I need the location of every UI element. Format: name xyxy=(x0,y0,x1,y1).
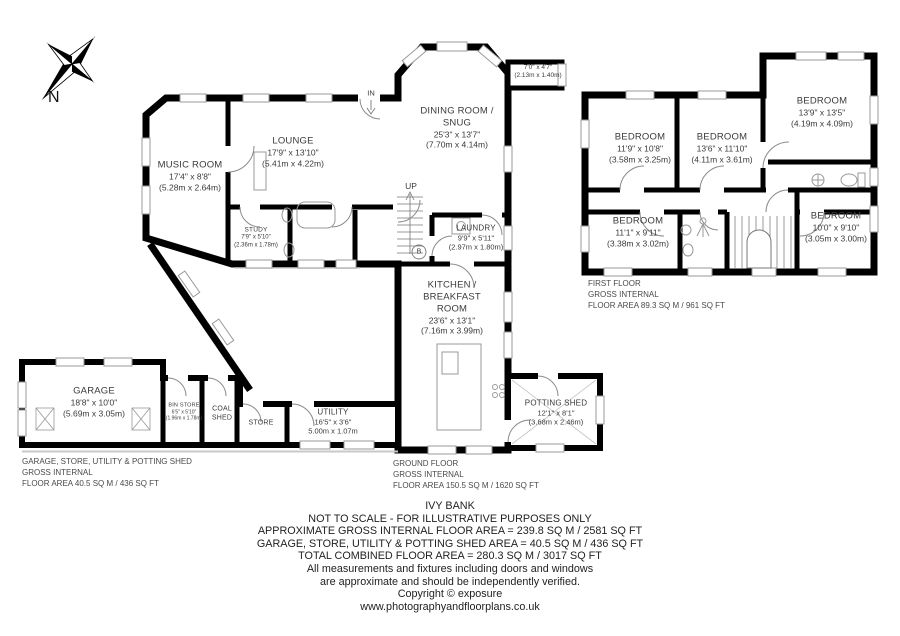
room-dim-imperial: 11'9" x 10'8" xyxy=(609,143,671,154)
room-dim-imperial: 16'5" x 3'6" xyxy=(308,418,358,427)
room-dim-metric: (2.36m x 1.78m) xyxy=(234,242,278,250)
room-dim-imperial: 17'4" x 8'8" xyxy=(158,171,223,182)
footer-line: GARAGE, STORE, UTILITY & POTTING SHED AR… xyxy=(0,538,900,551)
note-line: GARAGE, STORE, UTILITY & POTTING SHED xyxy=(22,456,192,467)
room-dim-imperial: 11'1" x 9'11" xyxy=(607,227,669,238)
note-line: FIRST FLOOR xyxy=(588,278,725,289)
room-name: BIN STORE xyxy=(166,402,202,409)
room-dim-metric: (7.70m x 4.14m) xyxy=(411,140,503,151)
recess-dims-label: 7'0" x 4'7" (2.13m x 1.40m) xyxy=(514,64,561,80)
room-dim-metric: (2.97m x 1.80m) xyxy=(449,243,504,252)
room-name: LOUNGE xyxy=(262,135,324,147)
room-label-bedroom4: BEDROOM 11'1" x 9'11" (3.38m x 3.02m) xyxy=(607,215,669,248)
room-dim-metric: (5.28m x 2.64m) xyxy=(158,182,223,193)
boiler-label: B xyxy=(417,249,422,256)
room-dim-imperial: 13'9" x 13'5" xyxy=(791,107,853,118)
room-dim-imperial: 10'0" x 9'10" xyxy=(805,222,867,233)
footer-line: www.photographyandfloorplans.co.uk xyxy=(0,601,900,614)
footer-line: are approximate and should be independen… xyxy=(0,576,900,589)
room-label-study: STUDY 7'9" x 5'10" (2.36m x 1.78m) xyxy=(234,226,278,249)
room-name: UTILITY xyxy=(308,408,358,418)
footer-line: NOT TO SCALE - FOR ILLUSTRATIVE PURPOSES… xyxy=(0,513,900,526)
recess-dim-metric: (2.13m x 1.40m) xyxy=(514,72,561,80)
room-name: GARAGE xyxy=(63,385,125,397)
room-name: BEDROOM xyxy=(607,215,669,227)
room-dim-imperial: 12'1" x 8'1" xyxy=(525,409,587,418)
room-label-store: STORE xyxy=(249,420,274,429)
room-name: BEDROOM xyxy=(791,95,853,107)
room-dim-imperial: 18'8" x 10'0" xyxy=(63,397,125,408)
note-line: GROSS INTERNAL xyxy=(588,289,725,300)
room-label-coal-shed: COAL SHED xyxy=(206,405,238,423)
room-name: MUSIC ROOM xyxy=(158,159,223,171)
footer-line: All measurements and fixtures including … xyxy=(0,563,900,576)
room-label-dining-snug: DINING ROOM / SNUG 25'3" x 13'7" (7.70m … xyxy=(411,106,503,151)
note-line: FLOOR AREA 89.3 SQ M / 961 SQ FT xyxy=(588,300,725,311)
room-dim-imperial: 9'9" x 5'11" xyxy=(449,234,504,243)
room-label-laundry: LAUNDRY 9'9" x 5'11" (2.97m x 1.80m) xyxy=(449,224,504,253)
room-label-bedroom2: BEDROOM 13'6" x 11'10" (4.11m x 3.61m) xyxy=(691,131,752,164)
room-dim-metric: (1.96m x 1.78m) xyxy=(166,415,202,421)
footer-line: APPROXIMATE GROSS INTERNAL FLOOR AREA = … xyxy=(0,525,900,538)
room-dim-metric: (3.58m x 3.25m) xyxy=(609,154,671,165)
recess-dim-imperial: 7'0" x 4'7" xyxy=(514,64,561,72)
room-name: DINING ROOM / SNUG xyxy=(411,106,503,130)
room-dim-metric: (5.69m x 3.05m) xyxy=(63,408,125,419)
room-label-bedroom3: BEDROOM 13'9" x 13'5" (4.19m x 4.09m) xyxy=(791,95,853,128)
room-dim-imperial: 17'9" x 13'10" xyxy=(262,147,324,158)
room-name: KITCHEN / BREAKFAST ROOM xyxy=(412,280,492,316)
room-dim-metric: 5.00m x 1.07m xyxy=(308,427,358,436)
first-floor-area-note: FIRST FLOOR GROSS INTERNAL FLOOR AREA 89… xyxy=(588,278,725,312)
property-title: IVY BANK xyxy=(0,500,900,513)
note-line: GROSS INTERNAL xyxy=(22,467,192,478)
footer-line: TOTAL COMBINED FLOOR AREA = 280.3 SQ M /… xyxy=(0,550,900,563)
room-name: STUDY xyxy=(234,226,278,234)
room-dim-imperial: 7'9" x 5'10" xyxy=(234,235,278,243)
note-line: FLOOR AREA 40.5 SQ M / 436 SQ FT xyxy=(22,478,192,489)
room-dim-imperial: 23'6" x 13'1" xyxy=(412,315,492,326)
room-dim-metric: (3.68m x 2.46m) xyxy=(525,418,587,427)
room-dim-imperial: 25'3" x 13'7" xyxy=(411,129,503,140)
room-label-kitchen: KITCHEN / BREAKFAST ROOM 23'6" x 13'1" (… xyxy=(412,280,492,337)
room-label-garage: GARAGE 18'8" x 10'0" (5.69m x 3.05m) xyxy=(63,385,125,418)
room-dim-metric: (4.11m x 3.61m) xyxy=(691,154,752,165)
compass-icon: N xyxy=(17,15,118,118)
note-line: GROUND FLOOR xyxy=(393,458,539,469)
note-line: GROSS INTERNAL xyxy=(393,469,539,480)
room-label-potting-shed: POTTING SHED 12'1" x 8'1" (3.68m x 2.46m… xyxy=(525,399,587,428)
room-label-utility: UTILITY 16'5" x 3'6" 5.00m x 1.07m xyxy=(308,408,358,437)
note-line: FLOOR AREA 150.5 SQ M / 1620 SQ FT xyxy=(393,480,539,491)
floorplan-page: N xyxy=(0,0,900,636)
room-label-lounge: LOUNGE 17'9" x 13'10" (5.41m x 4.22m) xyxy=(262,135,324,168)
room-dim-metric: (4.19m x 4.09m) xyxy=(791,118,853,129)
room-dim-metric: (7.16m x 3.99m) xyxy=(412,326,492,337)
annex-area-note: GARAGE, STORE, UTILITY & POTTING SHED GR… xyxy=(22,456,192,490)
room-name: POTTING SHED xyxy=(525,399,587,409)
stairs-up-label: UP xyxy=(405,181,417,191)
room-name: BEDROOM xyxy=(691,131,752,143)
footer-text-block: IVY BANK NOT TO SCALE - FOR ILLUSTRATIVE… xyxy=(0,500,900,613)
room-label-bin-store: BIN STORE 6'5" x 5'10" (1.96m x 1.78m) xyxy=(166,402,202,421)
room-dim-metric: (3.38m x 3.02m) xyxy=(607,238,669,249)
room-label-music-room: MUSIC ROOM 17'4" x 8'8" (5.28m x 2.64m) xyxy=(158,159,223,192)
room-dim-metric: (3.05m x 3.00m) xyxy=(805,233,867,244)
ground-floor-area-note: GROUND FLOOR GROSS INTERNAL FLOOR AREA 1… xyxy=(393,458,539,492)
room-label-bedroom5: BEDROOM 10'0" x 9'10" (3.05m x 3.00m) xyxy=(805,210,867,243)
entrance-in-label: IN xyxy=(367,89,375,98)
room-dim-metric: (5.41m x 4.22m) xyxy=(262,158,324,169)
room-name: BEDROOM xyxy=(609,131,671,143)
room-name: LAUNDRY xyxy=(449,224,504,234)
room-name: BEDROOM xyxy=(805,210,867,222)
room-name: STORE xyxy=(249,420,274,429)
room-dim-imperial: 13'6" x 11'10" xyxy=(691,143,752,154)
room-name: COAL SHED xyxy=(206,405,238,423)
compass-north-letter: N xyxy=(48,89,60,106)
footer-line: Copyright © exposure xyxy=(0,588,900,601)
room-label-bedroom1: BEDROOM 11'9" x 10'8" (3.58m x 3.25m) xyxy=(609,131,671,164)
